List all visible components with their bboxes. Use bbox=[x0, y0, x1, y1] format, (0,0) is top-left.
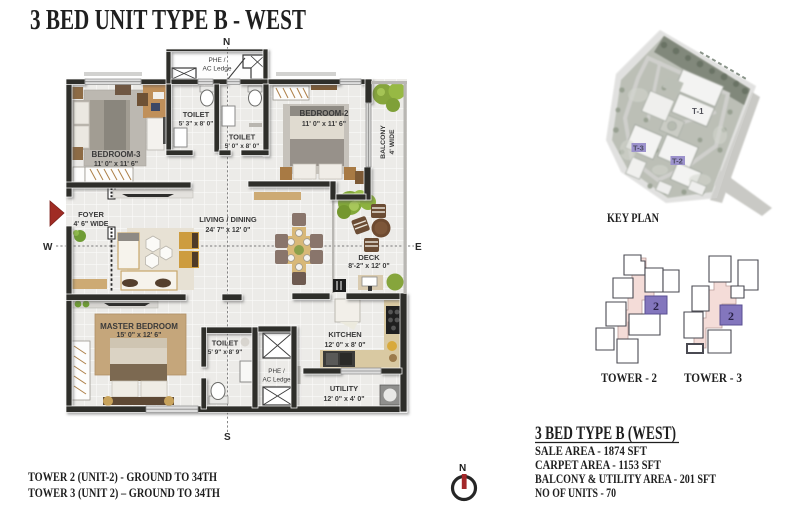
svg-text:E: E bbox=[415, 242, 422, 253]
svg-text:TOILET: TOILET bbox=[183, 110, 210, 119]
svg-text:TOWER - 2: TOWER - 2 bbox=[601, 370, 657, 385]
svg-text:N: N bbox=[459, 463, 466, 474]
svg-text:3 BED UNIT TYPE B - WEST: 3 BED UNIT TYPE B - WEST bbox=[30, 5, 306, 36]
svg-text:TOWER 3 (UNIT 2) – GROUND TO: TOWER 3 (UNIT 2) – GROUND TO 34TH bbox=[28, 486, 220, 500]
svg-text:4' 6" WIDE: 4' 6" WIDE bbox=[74, 221, 109, 228]
svg-text:BEDROOM-3: BEDROOM-3 bbox=[92, 150, 141, 159]
svg-text:CARPET AREA - 1153 SFT: CARPET AREA - 1153 SFT bbox=[535, 458, 662, 472]
svg-text:5' 9" x 8' 9": 5' 9" x 8' 9" bbox=[208, 349, 243, 356]
svg-text:DECK: DECK bbox=[358, 253, 380, 262]
svg-text:12' 0" x 4' 0": 12' 0" x 4' 0" bbox=[323, 396, 364, 403]
svg-text:15' 0" x 12' 6": 15' 0" x 12' 6" bbox=[117, 332, 162, 339]
svg-text:4' WIDE: 4' WIDE bbox=[389, 129, 396, 154]
svg-text:UTILITY: UTILITY bbox=[330, 384, 358, 393]
svg-text:5' 3" x 8' 0": 5' 3" x 8' 0" bbox=[179, 121, 214, 128]
svg-text:MASTER BEDROOM: MASTER BEDROOM bbox=[100, 322, 178, 331]
svg-text:TOWER - 3: TOWER - 3 bbox=[684, 370, 742, 385]
svg-text:TOILET: TOILET bbox=[212, 339, 239, 348]
svg-text:W: W bbox=[43, 242, 53, 253]
svg-text:12' 0" x 8' 0": 12' 0" x 8' 0" bbox=[324, 342, 365, 349]
svg-text:24' 7" x 12' 0": 24' 7" x 12' 0" bbox=[206, 227, 251, 234]
svg-text:3 BED TYPE B (WEST): 3 BED TYPE B (WEST) bbox=[535, 424, 676, 444]
svg-text:KITCHEN: KITCHEN bbox=[328, 330, 361, 339]
svg-text:BALCONY: BALCONY bbox=[380, 125, 387, 159]
svg-text:8'-2" x 12' 0": 8'-2" x 12' 0" bbox=[348, 263, 390, 270]
svg-text:PHE /: PHE / bbox=[209, 57, 226, 64]
svg-text:2: 2 bbox=[728, 309, 734, 323]
svg-text:PHE /: PHE / bbox=[268, 368, 285, 375]
svg-text:AC Ledge: AC Ledge bbox=[203, 66, 232, 73]
svg-text:BALCONY & UTILITY AREA - 201 S: BALCONY & UTILITY AREA - 201 SFT bbox=[535, 472, 717, 486]
svg-text:SALE AREA - 1874 SFT: SALE AREA - 1874 SFT bbox=[535, 444, 648, 458]
svg-text:LIVING / DINING: LIVING / DINING bbox=[199, 215, 257, 224]
svg-text:TOILET: TOILET bbox=[229, 133, 256, 142]
svg-text:11' 0" x 11' 6": 11' 0" x 11' 6" bbox=[302, 121, 346, 128]
svg-text:KEY PLAN: KEY PLAN bbox=[607, 210, 659, 225]
svg-text:AC Ledge: AC Ledge bbox=[262, 377, 291, 384]
svg-text:11' 0" x 11' 6": 11' 0" x 11' 6" bbox=[94, 161, 138, 168]
svg-text:TOWER 2 (UNIT-2) - GROUND TO 3: TOWER 2 (UNIT-2) - GROUND TO 34TH bbox=[28, 470, 217, 484]
svg-text:5' 0" x 8' 0": 5' 0" x 8' 0" bbox=[225, 143, 260, 150]
svg-text:NO OF UNITS - 70: NO OF UNITS - 70 bbox=[535, 486, 616, 500]
svg-text:N: N bbox=[223, 37, 230, 48]
svg-text:FOYER: FOYER bbox=[78, 210, 104, 219]
svg-text:S: S bbox=[224, 432, 231, 443]
svg-text:BEDROOM-2: BEDROOM-2 bbox=[300, 109, 349, 118]
svg-text:2: 2 bbox=[653, 299, 659, 313]
